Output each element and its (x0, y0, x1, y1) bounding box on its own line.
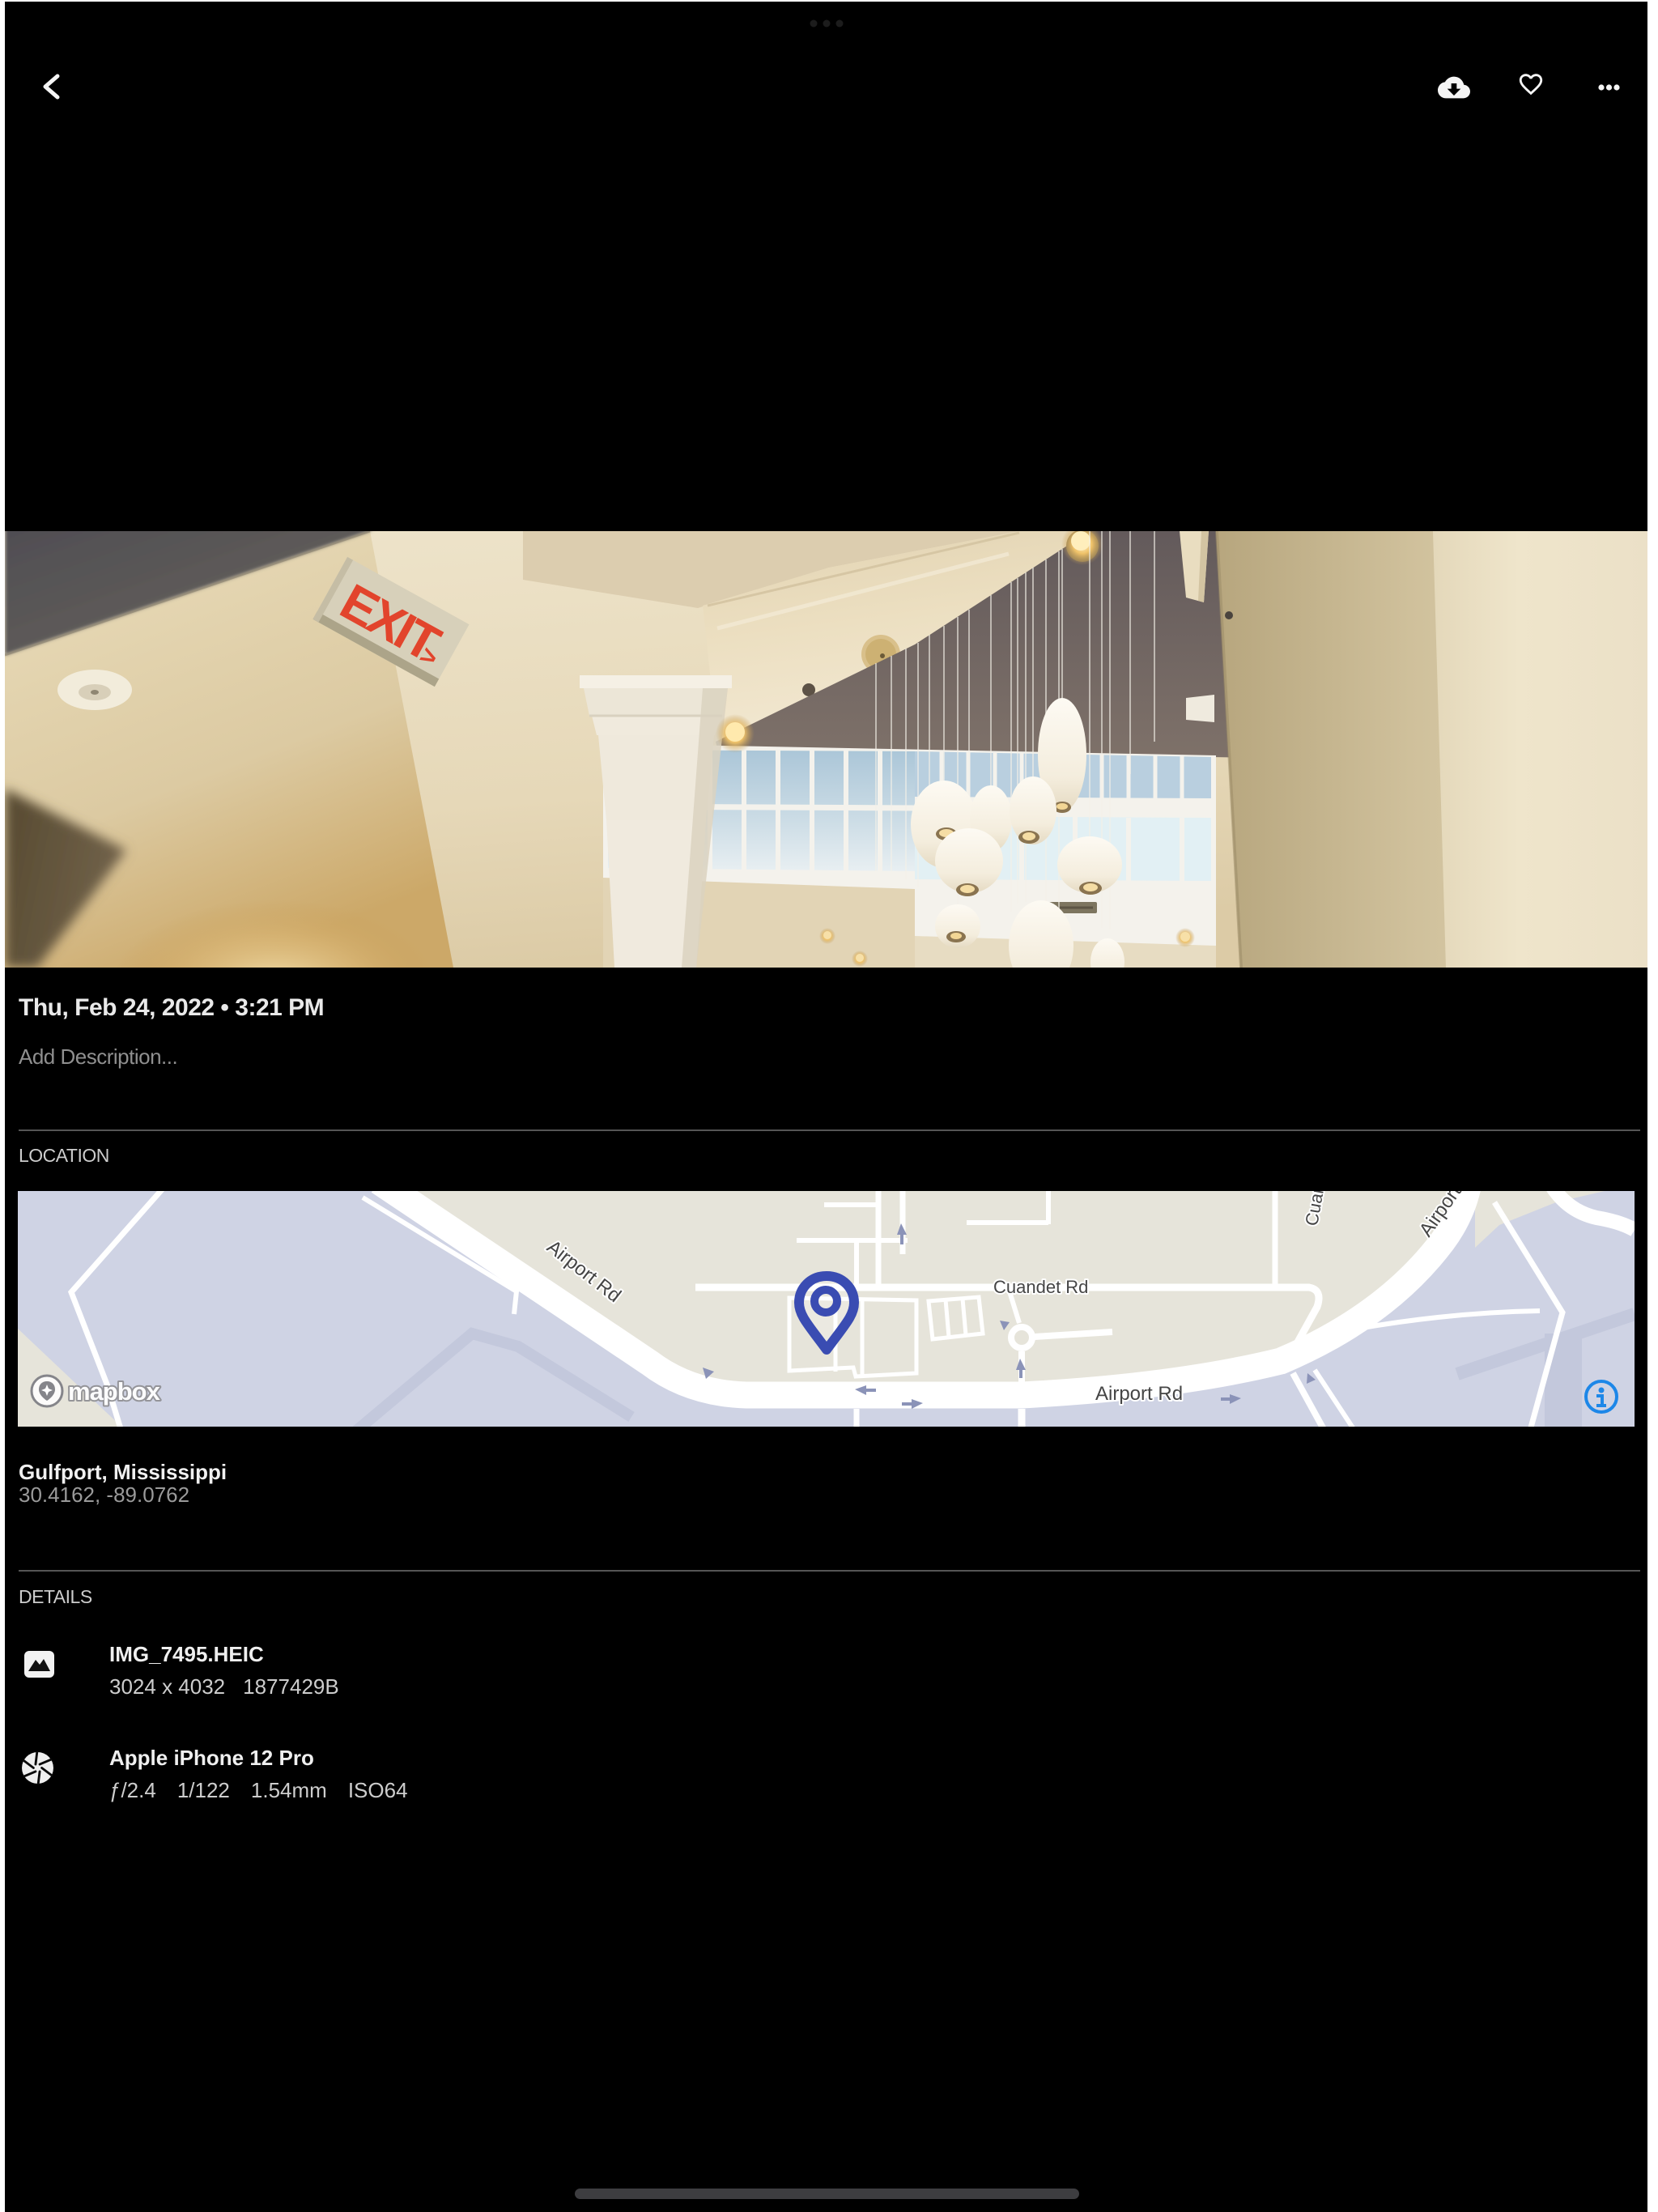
svg-text:Cuandet Rd: Cuandet Rd (993, 1277, 1088, 1297)
svg-text:mapbox: mapbox (68, 1377, 161, 1406)
svg-text:Airport Rd: Airport Rd (1095, 1383, 1183, 1405)
